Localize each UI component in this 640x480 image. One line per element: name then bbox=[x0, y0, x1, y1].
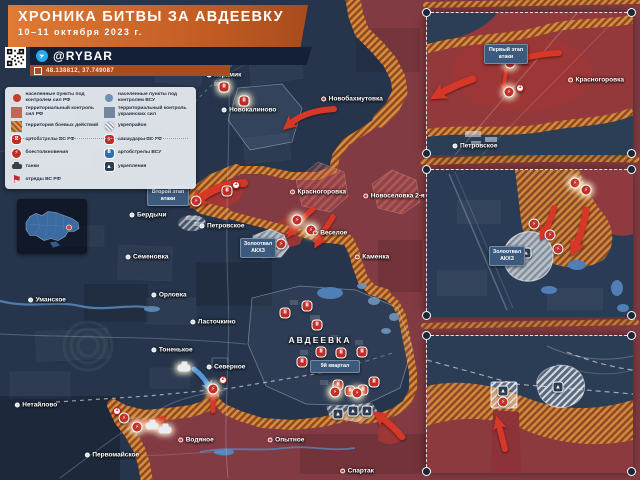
inset-3-canvas bbox=[427, 336, 633, 473]
legend-icon: ▲ bbox=[104, 161, 115, 172]
legend-icon: Ⅱ bbox=[11, 134, 22, 145]
title-banner: ХРОНИКА БИТВЫ ЗА АВДЕЕВКУ 10–11 октября … bbox=[8, 5, 308, 47]
inset-corner-marker bbox=[627, 149, 636, 158]
legend-label: танки bbox=[26, 164, 40, 170]
legend-item: территориальный контроль украинских сил bbox=[104, 106, 192, 118]
legend-item: населенные пункты под контролем сил РФ bbox=[11, 92, 99, 104]
date-subtitle: 10–11 октября 2023 г. bbox=[18, 27, 298, 37]
legend-item: территория боевых действий bbox=[11, 121, 99, 132]
telegram-handle: @RYBAR bbox=[53, 49, 113, 63]
legend-icon bbox=[104, 107, 115, 118]
inset-panel-1 bbox=[426, 12, 632, 154]
telegram-icon: ➤ bbox=[34, 48, 49, 63]
coordinates-bar: 48.138812, 37.749087 bbox=[30, 65, 230, 76]
legend-item: населенные пункты под контролем ВСУ bbox=[104, 92, 192, 104]
brand-bar: ➤ @RYBAR bbox=[30, 47, 312, 65]
inset-corner-marker bbox=[422, 8, 431, 17]
legend-item: территориальный контроль сил РФ bbox=[11, 106, 99, 118]
inset-2-canvas bbox=[427, 170, 633, 317]
legend-item: Ⅱ артобстрелы ВСУ bbox=[104, 148, 192, 159]
legend-icon: ✈ bbox=[104, 134, 115, 145]
checkbox-icon bbox=[34, 67, 42, 75]
inset-corner-marker bbox=[627, 331, 636, 340]
inset-corner-marker bbox=[422, 331, 431, 340]
legend-icon bbox=[105, 94, 113, 102]
inset-panel-2 bbox=[426, 169, 632, 316]
qr-code bbox=[5, 47, 26, 68]
legend-item: укрепрайон bbox=[104, 121, 192, 132]
inset-corner-marker bbox=[422, 149, 431, 158]
legend-panel: населенные пункты под контролем сил РФ т… bbox=[5, 87, 196, 189]
legend-item: ⚑ отряды ВС РФ bbox=[11, 175, 99, 186]
legend-column-ua: населенные пункты под контролем ВСУ терр… bbox=[104, 92, 192, 186]
legend-label: отряды ВС РФ bbox=[26, 177, 61, 183]
legend-icon: Ⅱ bbox=[104, 148, 115, 159]
legend-item: танки bbox=[11, 161, 99, 172]
legend-item: ✈ авиаудары ВС РФ bbox=[104, 134, 192, 145]
legend-label: боестолкновения bbox=[26, 150, 69, 156]
inset-corner-marker bbox=[422, 467, 431, 476]
page-title: ХРОНИКА БИТВЫ ЗА АВДЕЕВКУ bbox=[18, 9, 298, 25]
inset-corner-marker bbox=[627, 311, 636, 320]
legend-separator bbox=[13, 138, 188, 139]
coordinates-value: 48.138812, 37.749087 bbox=[46, 68, 114, 74]
inset-corner-marker bbox=[627, 165, 636, 174]
legend-icon bbox=[11, 161, 22, 172]
inset-1-canvas bbox=[427, 13, 633, 155]
legend-item: Ⅱ артобстрелы ВС РФ bbox=[11, 134, 99, 145]
avdiivka-outline bbox=[248, 286, 412, 406]
legend-item: ▲ укрепления bbox=[104, 161, 192, 172]
inset-corner-marker bbox=[422, 165, 431, 174]
legend-icon bbox=[104, 121, 115, 132]
legend-icon: ⚑ bbox=[11, 175, 22, 186]
legend-item: ⚡ боестолкновения bbox=[11, 148, 99, 159]
legend-label: территориальный контроль украинских сил bbox=[118, 106, 191, 118]
legend-icon bbox=[11, 121, 22, 132]
legend-column-rf: населенные пункты под контролем сил РФ т… bbox=[11, 92, 99, 186]
inset-corner-marker bbox=[627, 8, 636, 17]
location-marker bbox=[66, 225, 71, 230]
legend-label: территория боевых действий bbox=[26, 123, 99, 129]
war-map-infographic: Ⅱ Ⅱ ⚡ 1 Ⅱ ⚡ ⚡ ▲ ⚡ Ⅱ Ⅱ Ⅱ bbox=[0, 0, 640, 480]
inset-corner-marker bbox=[627, 467, 636, 476]
legend-label: укрепрайон bbox=[118, 123, 146, 129]
inset-corner-marker bbox=[422, 311, 431, 320]
legend-label: укрепления bbox=[118, 164, 146, 170]
inset-panel-3 bbox=[426, 335, 632, 472]
legend-icon bbox=[13, 94, 21, 102]
legend-label: населенные пункты под контролем ВСУ bbox=[118, 92, 191, 104]
legend-icon: ⚡ bbox=[11, 148, 22, 159]
legend-label: территориальный контроль сил РФ bbox=[26, 106, 99, 118]
legend-label: артобстрелы ВСУ bbox=[118, 150, 161, 156]
legend-label: населенные пункты под контролем сил РФ bbox=[26, 92, 99, 104]
legend-icon bbox=[11, 107, 22, 118]
ukraine-minimap bbox=[17, 199, 87, 254]
